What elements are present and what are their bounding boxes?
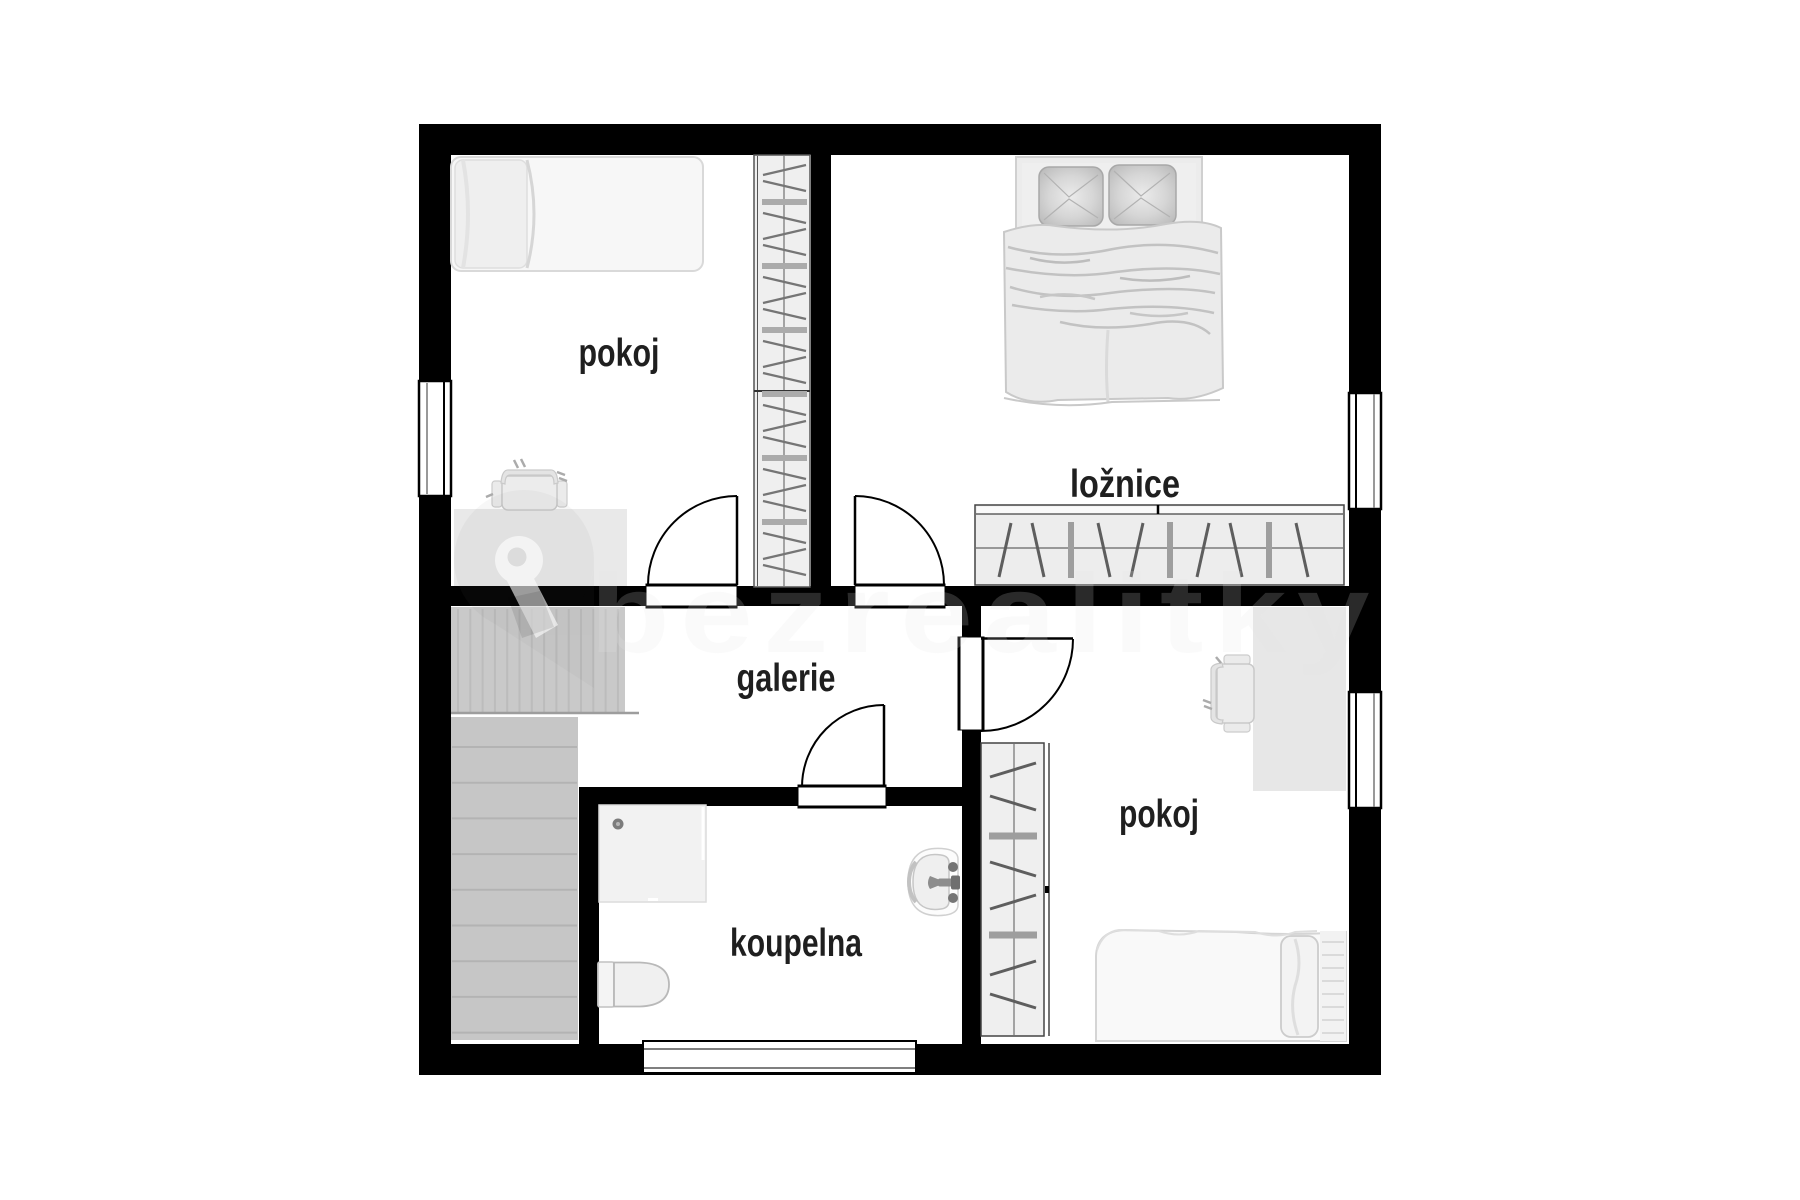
svg-text:pokoj: pokoj — [1119, 793, 1199, 836]
svg-text:pokoj: pokoj — [579, 332, 660, 375]
svg-text:koupelna: koupelna — [730, 922, 862, 965]
svg-text:bezrealitky: bezrealitky — [590, 551, 1380, 676]
svg-text:ložnice: ložnice — [1070, 463, 1180, 506]
